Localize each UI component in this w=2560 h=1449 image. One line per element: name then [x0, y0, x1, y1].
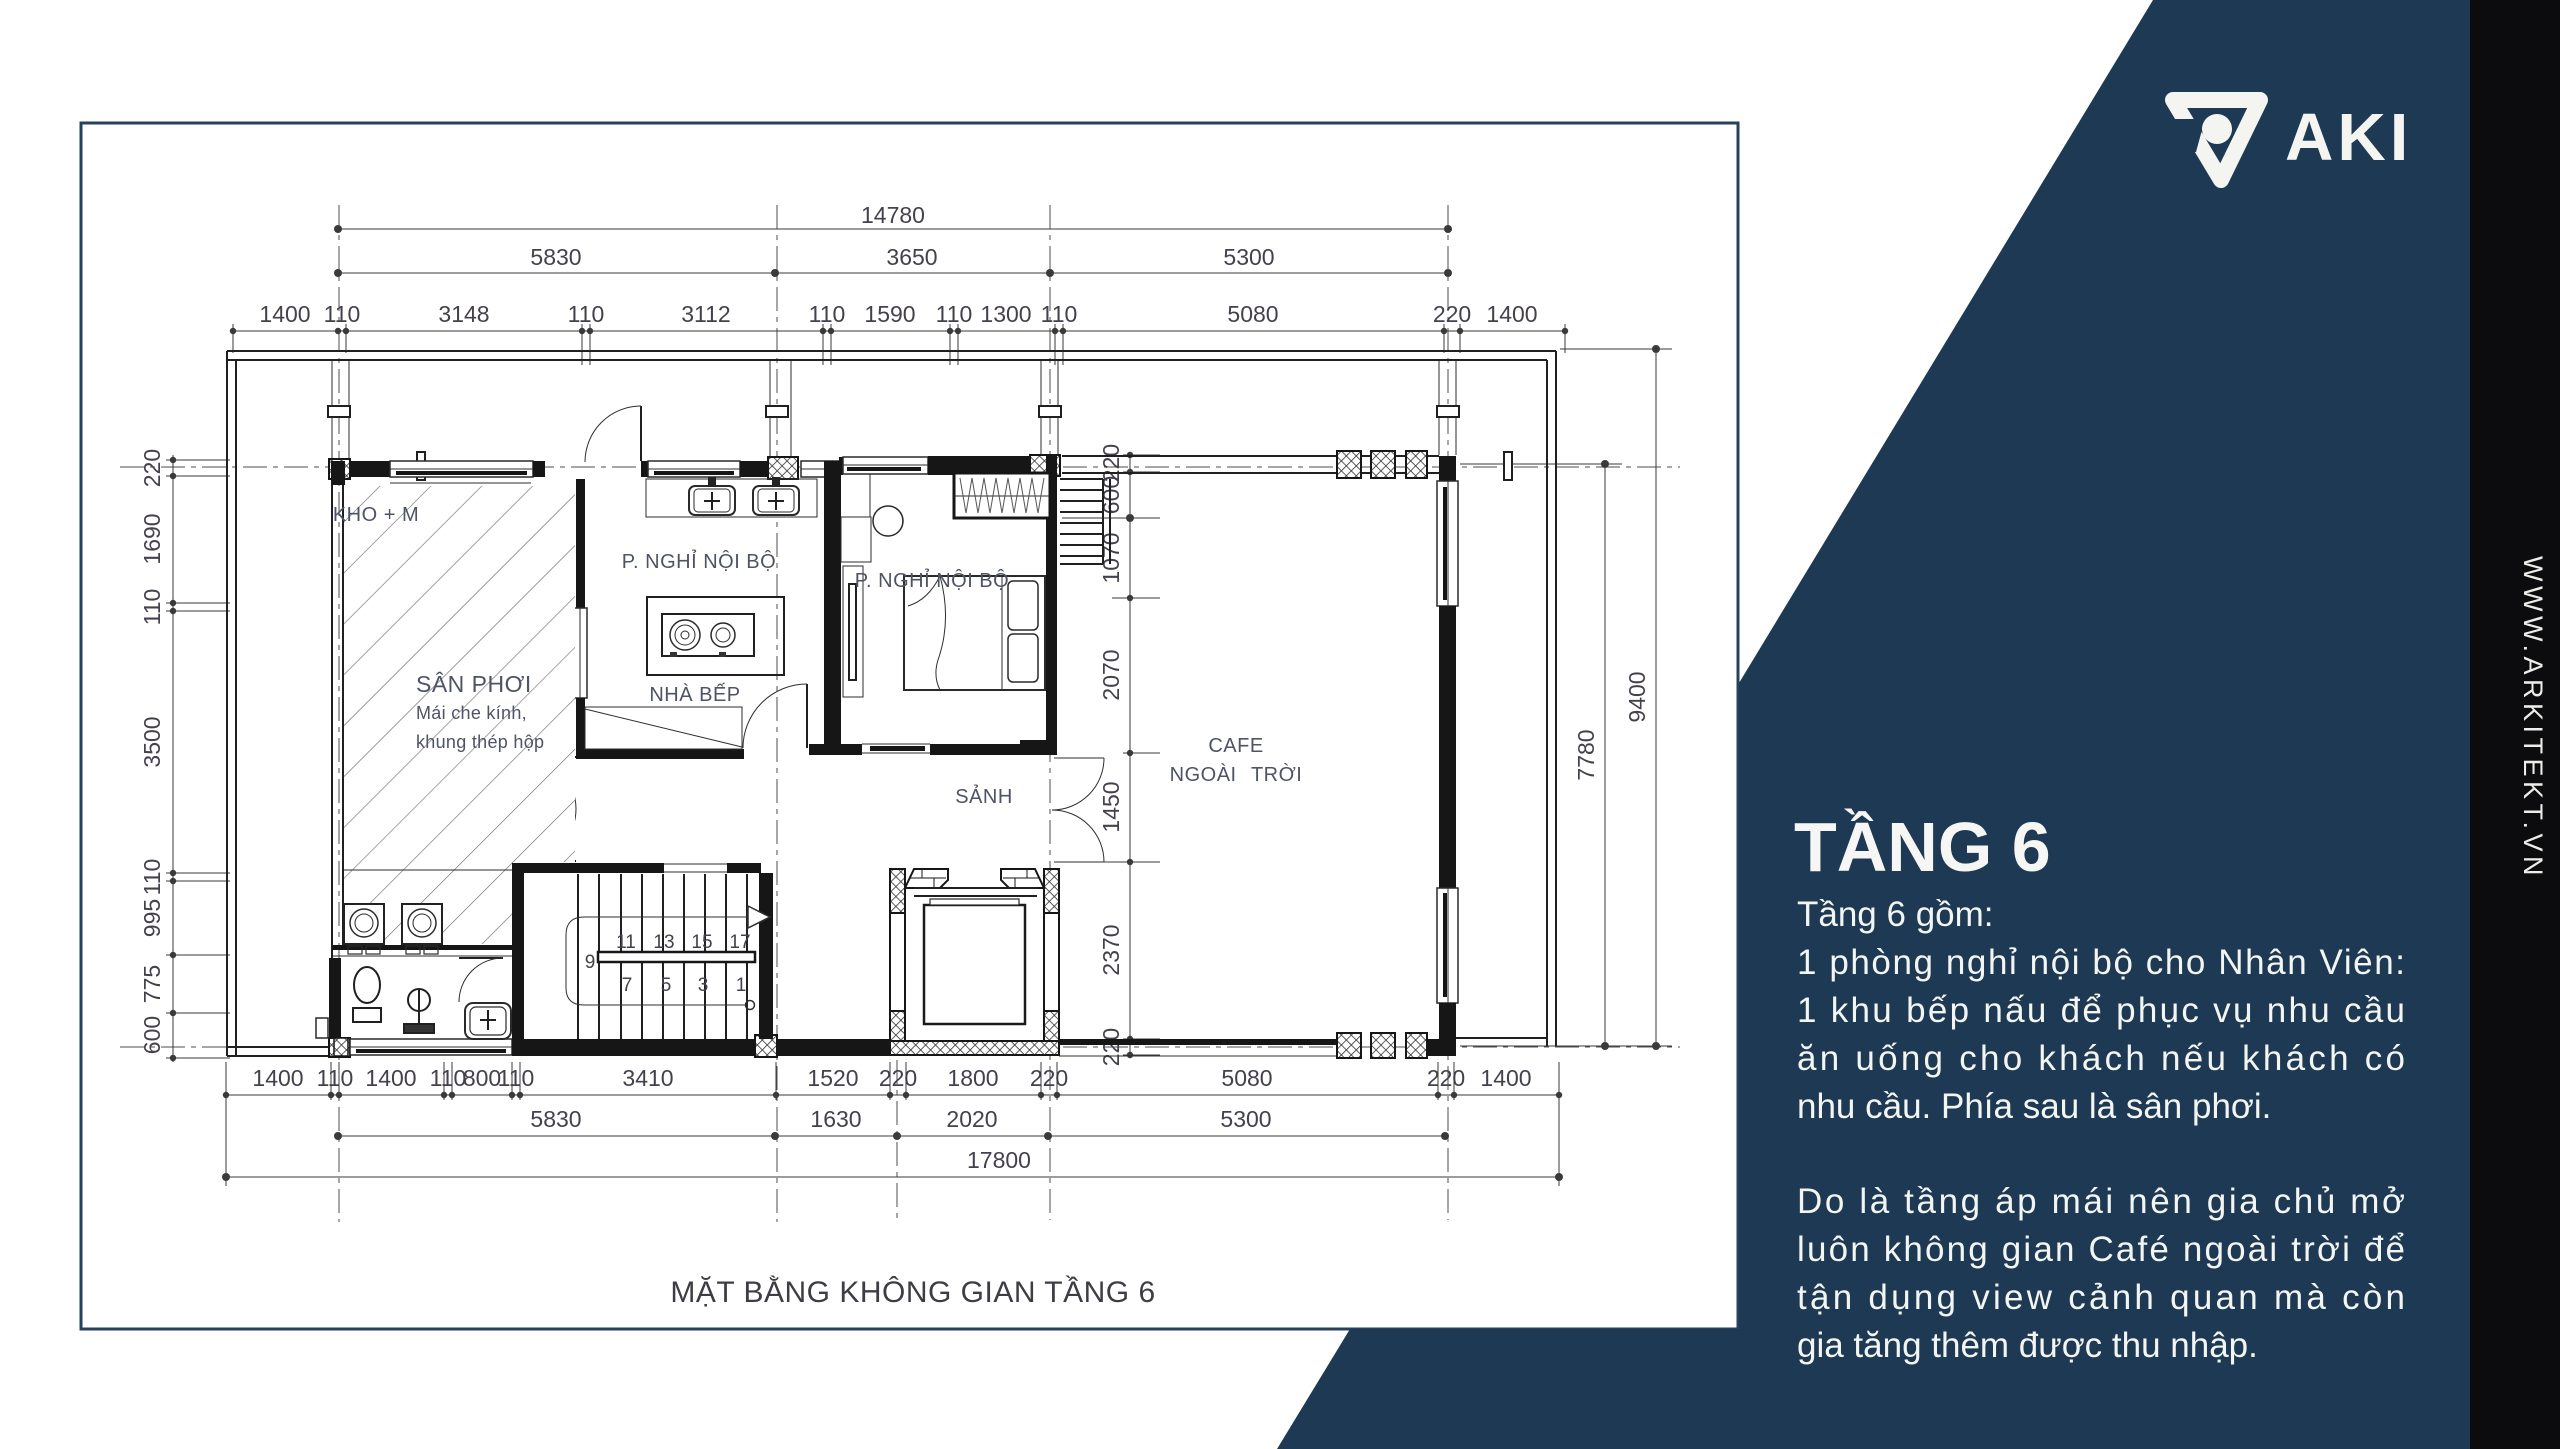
svg-text:P. NGHỈ NỘI BỘ: P. NGHỈ NỘI BỘ: [855, 569, 1009, 592]
svg-text:110: 110: [498, 1065, 535, 1091]
svg-text:CAFE: CAFE: [1208, 735, 1263, 757]
svg-text:110: 110: [809, 301, 846, 327]
svg-text:17800: 17800: [967, 1147, 1031, 1173]
svg-text:5080: 5080: [1227, 301, 1278, 327]
svg-text:9400: 9400: [1624, 671, 1650, 722]
svg-text:1590: 1590: [864, 301, 915, 327]
svg-text:775: 775: [139, 965, 165, 1003]
svg-text:7: 7: [622, 975, 633, 996]
svg-text:P. NGHỈ NỘI BỘ: P. NGHỈ NỘI BỘ: [622, 550, 776, 573]
svg-text:5: 5: [661, 975, 672, 996]
svg-text:1400: 1400: [1480, 1065, 1531, 1091]
svg-text:1400: 1400: [259, 301, 310, 327]
svg-text:2370: 2370: [1098, 924, 1124, 975]
svg-text:7780: 7780: [1573, 729, 1599, 780]
svg-text:khung thép hộp: khung thép hộp: [416, 732, 544, 752]
svg-text:110: 110: [317, 1065, 354, 1091]
svg-text:5300: 5300: [1220, 1106, 1271, 1132]
svg-text:nhu cầu. Phía sau là sân phơi.: nhu cầu. Phía sau là sân phơi.: [1797, 1087, 2271, 1126]
svg-text:15: 15: [691, 932, 712, 953]
svg-text:14780: 14780: [861, 202, 925, 228]
svg-text:1300: 1300: [980, 301, 1031, 327]
svg-text:800: 800: [463, 1065, 501, 1091]
svg-text:3650: 3650: [886, 244, 937, 270]
svg-text:9: 9: [585, 952, 596, 973]
svg-text:WWW.ARKITEKT.VN: WWW.ARKITEKT.VN: [2518, 556, 2548, 880]
svg-text:220: 220: [879, 1065, 917, 1091]
svg-text:110: 110: [139, 589, 165, 626]
svg-text:3112: 3112: [681, 301, 730, 327]
svg-text:220: 220: [1030, 1065, 1068, 1091]
svg-text:5080: 5080: [1221, 1065, 1272, 1091]
svg-text:MẶT BẰNG KHÔNG GIAN TẦNG 6: MẶT BẰNG KHÔNG GIAN TẦNG 6: [670, 1275, 1155, 1309]
svg-text:SÂN PHƠI: SÂN PHƠI: [416, 671, 532, 697]
svg-text:220: 220: [1427, 1065, 1465, 1091]
svg-text:1630: 1630: [810, 1106, 861, 1132]
svg-text:1690: 1690: [139, 513, 165, 564]
svg-text:110: 110: [568, 301, 605, 327]
svg-text:110: 110: [936, 301, 973, 327]
svg-text:1400: 1400: [252, 1065, 303, 1091]
svg-text:1450: 1450: [1098, 781, 1124, 832]
svg-text:110: 110: [324, 301, 361, 327]
svg-text:5300: 5300: [1223, 244, 1274, 270]
svg-text:600: 600: [139, 1016, 165, 1054]
svg-text:3500: 3500: [139, 716, 165, 767]
svg-text:gia tăng thêm được thu nhập.: gia tăng thêm được thu nhập.: [1797, 1326, 2258, 1365]
svg-text:2020: 2020: [946, 1106, 997, 1132]
svg-text:110: 110: [139, 859, 165, 896]
svg-text:3410: 3410: [622, 1065, 673, 1091]
svg-text:KHO + M: KHO + M: [333, 504, 419, 526]
svg-text:ăn uống cho khách nếu khách có: ăn uống cho khách nếu khách có: [1797, 1039, 2405, 1078]
svg-text:1: 1: [736, 975, 747, 996]
svg-text:17: 17: [729, 932, 750, 953]
svg-text:110: 110: [1041, 301, 1078, 327]
svg-text:Mái che kính,: Mái che kính,: [416, 703, 527, 723]
svg-text:995: 995: [139, 899, 165, 937]
svg-text:1 phòng nghỉ nội bộ cho Nhân V: 1 phòng nghỉ nội bộ cho Nhân Viên:: [1797, 943, 2405, 982]
svg-text:Tầng 6 gồm:: Tầng 6 gồm:: [1797, 895, 1994, 934]
svg-text:3148: 3148: [438, 301, 489, 327]
svg-text:3: 3: [698, 975, 709, 996]
svg-text:NGOÀI TRỜI: NGOÀI TRỜI: [1170, 763, 1303, 786]
svg-text:TẦNG 6: TẦNG 6: [1794, 808, 2051, 886]
svg-text:SẢNH: SẢNH: [955, 785, 1013, 808]
svg-text:1800: 1800: [947, 1065, 998, 1091]
svg-text:1 khu bếp nấu để phục vụ nhu c: 1 khu bếp nấu để phục vụ nhu cầu: [1797, 991, 2405, 1030]
svg-text:NHÀ BẾP: NHÀ BẾP: [649, 683, 740, 706]
svg-text:1400: 1400: [365, 1065, 416, 1091]
svg-text:5830: 5830: [530, 244, 581, 270]
svg-text:1400: 1400: [1486, 301, 1537, 327]
svg-text:1520: 1520: [807, 1065, 858, 1091]
svg-text:5830: 5830: [530, 1106, 581, 1132]
svg-text:220: 220: [1433, 301, 1471, 327]
svg-text:AKI: AKI: [2285, 100, 2412, 175]
svg-text:110: 110: [430, 1065, 467, 1091]
svg-text:220: 220: [139, 449, 165, 487]
svg-text:luôn không gian Café ngoài trờ: luôn không gian Café ngoài trời để: [1797, 1230, 2405, 1269]
svg-text:11: 11: [616, 932, 636, 953]
svg-text:220: 220: [1098, 1028, 1124, 1066]
svg-text:2070: 2070: [1098, 649, 1124, 700]
svg-text:13: 13: [653, 932, 674, 953]
